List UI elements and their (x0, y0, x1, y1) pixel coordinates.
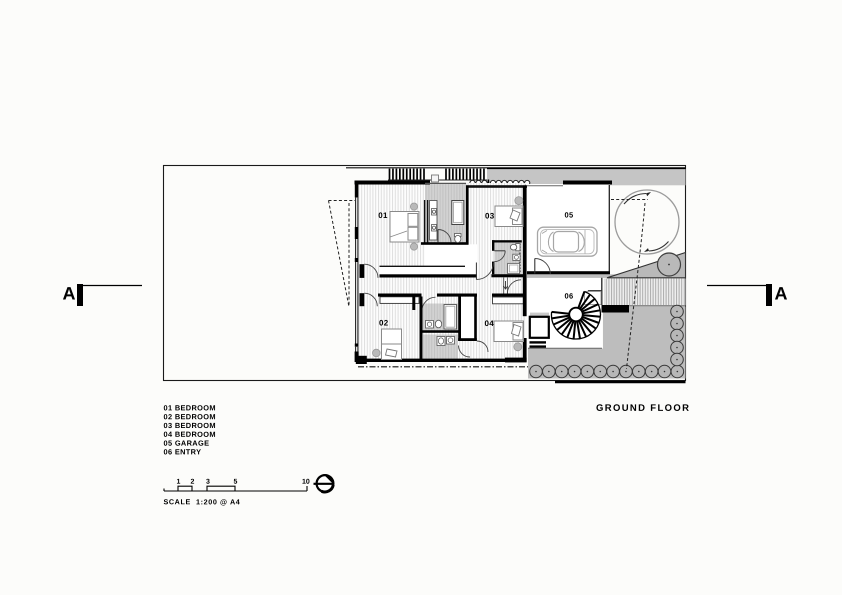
svg-text:3: 3 (206, 479, 210, 486)
svg-text:5: 5 (233, 479, 237, 486)
svg-text:GROUND FLOOR: GROUND FLOOR (596, 403, 690, 414)
svg-text:06: 06 (564, 292, 573, 301)
svg-text:SCALE 1:200 @ A4: SCALE 1:200 @ A4 (163, 497, 240, 506)
svg-text:04: 04 (484, 319, 494, 328)
svg-text:03: 03 (485, 212, 495, 221)
svg-text:1: 1 (176, 479, 180, 486)
svg-text:03 BEDROOM: 03 BEDROOM (163, 421, 215, 430)
svg-text:10: 10 (302, 479, 310, 486)
svg-text:05 GARAGE: 05 GARAGE (163, 439, 209, 448)
svg-text:06 ENTRY: 06 ENTRY (163, 447, 201, 456)
svg-text:2: 2 (190, 479, 194, 486)
svg-text:01: 01 (378, 211, 388, 220)
svg-text:A: A (774, 284, 787, 304)
svg-text:A: A (62, 284, 75, 304)
svg-text:02: 02 (379, 319, 389, 328)
svg-text:02 BEDROOM: 02 BEDROOM (163, 412, 215, 421)
svg-text:04 BEDROOM: 04 BEDROOM (163, 430, 215, 439)
svg-text:05: 05 (564, 211, 573, 220)
svg-text:01 BEDROOM: 01 BEDROOM (163, 403, 215, 412)
